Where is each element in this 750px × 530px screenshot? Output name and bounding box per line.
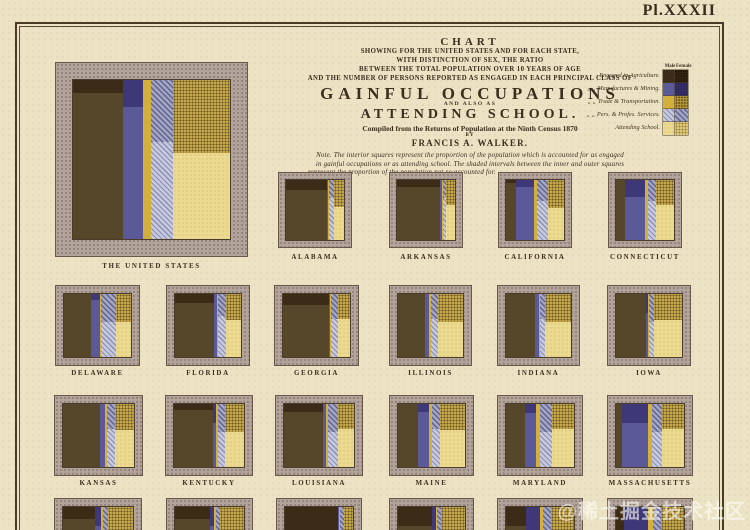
- state-label: MARYLAND: [487, 479, 593, 487]
- segment-school: [654, 320, 682, 357]
- state-label: ILLINOIS: [379, 369, 482, 377]
- legend-row: „ „ Pers. & Profes. Services.: [592, 109, 722, 122]
- occupation-band: [622, 404, 648, 467]
- state-square-partial: [276, 498, 362, 530]
- segment-school: [334, 207, 344, 240]
- square-inner: [506, 180, 564, 240]
- segment-agriDark: [285, 507, 338, 530]
- occupation-band: [397, 180, 440, 240]
- segment-svcDark: [218, 294, 226, 316]
- legend-label: „ „ Manufactures & Mining.: [540, 85, 660, 92]
- legend-label: Engaged in Agriculture.: [540, 72, 660, 79]
- state-square: [166, 285, 250, 366]
- state-label: CALIFORNIA: [488, 253, 582, 261]
- segment-svcDark: [537, 180, 549, 201]
- segment-agriDark: [73, 80, 123, 93]
- segment-svcDark: [432, 404, 440, 429]
- segment-svcDark: [107, 404, 115, 429]
- segment-schoolDot: [344, 507, 353, 530]
- legend-chip-female: [675, 96, 688, 109]
- square-inner: [286, 180, 344, 240]
- segment-trade: [143, 80, 150, 239]
- occupation-band: [63, 507, 95, 530]
- occupation-band: [506, 180, 516, 240]
- occupation-band: [218, 294, 226, 357]
- state-label: LOUISIANA: [265, 479, 373, 487]
- segment-schoolDot: [548, 180, 564, 208]
- square-inner: [63, 507, 133, 530]
- state-square: [498, 172, 572, 248]
- occupation-band: [432, 404, 440, 467]
- segment-svc: [648, 201, 655, 240]
- state-label: INDIANA: [487, 369, 590, 377]
- segment-school: [656, 205, 674, 240]
- occupation-band: [418, 404, 429, 467]
- segment-school: [338, 429, 354, 467]
- legend-row: Engaged in Agriculture.: [592, 70, 722, 83]
- segment-mfgDark: [622, 404, 648, 423]
- segment-agriDark: [397, 180, 440, 187]
- segment-agri: [286, 190, 327, 240]
- state-label: ARKANSAS: [379, 253, 473, 261]
- segment-svc: [540, 432, 552, 467]
- segment-school: [446, 205, 455, 240]
- chart-label: CHART: [280, 36, 660, 48]
- segment-agriDark: [283, 294, 329, 305]
- segment-agri: [506, 294, 535, 357]
- segment-school: [545, 322, 571, 357]
- occupation-band: [116, 294, 131, 357]
- state-square: [278, 172, 352, 248]
- legend-row: „ „ Trade & Transportation.: [592, 96, 722, 109]
- segment-schoolDot: [441, 507, 465, 530]
- segment-schoolDot: [226, 294, 241, 320]
- segment-agri: [283, 305, 329, 357]
- segment-school: [173, 153, 230, 239]
- segment-mfgDark: [625, 180, 645, 197]
- occupation-band: [115, 404, 134, 467]
- square-inner: [64, 294, 131, 357]
- segment-svcDark: [540, 404, 552, 432]
- square-inner: [283, 294, 350, 357]
- watermark: @稀土掘金技术社区: [557, 495, 746, 524]
- segment-agriDark: [398, 507, 432, 526]
- segment-mfg: [123, 107, 144, 239]
- segment-schoolDot: [654, 294, 682, 320]
- segment-svc: [151, 142, 173, 239]
- subtitle-line: WITH DISTINCTION OF SEX, THE RATIO: [280, 57, 660, 64]
- segment-svc: [218, 316, 226, 357]
- occupation-band: [286, 180, 327, 240]
- legend-header-male: Male: [663, 64, 677, 69]
- occupation-band: [338, 404, 354, 467]
- state-square: [389, 172, 463, 248]
- state-square: [55, 62, 248, 257]
- segment-svcDark: [151, 80, 173, 142]
- legend-chip-female: [675, 83, 688, 96]
- segment-agriDark: [506, 507, 526, 526]
- occupation-band: [225, 404, 244, 467]
- legend-label: „ „ Trade & Transportation.: [540, 98, 660, 105]
- segment-agri: [284, 412, 323, 467]
- segment-mfgDark: [526, 507, 540, 530]
- square-inner: [506, 294, 571, 357]
- segment-mfg: [622, 423, 648, 467]
- segment-agriDark: [63, 507, 95, 519]
- legend-chip-male: [663, 109, 675, 122]
- occupation-band: [526, 507, 540, 530]
- segment-agri: [63, 519, 95, 530]
- occupation-band: [143, 80, 150, 239]
- occupation-band: [543, 507, 551, 530]
- square-inner: [506, 404, 574, 467]
- occupation-band: [616, 180, 625, 240]
- square-inner: [63, 404, 134, 467]
- segment-svc: [432, 429, 440, 467]
- segment-svc: [107, 429, 115, 467]
- occupation-band: [398, 507, 432, 530]
- segment-schoolDot: [220, 507, 244, 530]
- segment-schoolDot: [656, 180, 674, 205]
- segment-schoolDot: [116, 294, 131, 322]
- segment-schoolDot: [338, 404, 354, 429]
- segment-mfg: [625, 197, 645, 240]
- segment-school: [338, 319, 350, 357]
- segment-svc: [331, 319, 338, 357]
- square-inner: [73, 80, 230, 239]
- legend-chip-male: [663, 122, 675, 135]
- square-inner: [285, 507, 353, 530]
- occupation-band: [516, 180, 533, 240]
- segment-agriDark: [286, 180, 327, 190]
- occupation-band: [220, 507, 244, 530]
- segment-agriDark: [175, 507, 210, 519]
- segment-mfgDark: [123, 80, 144, 107]
- segment-schoolDot: [446, 180, 455, 205]
- occupation-band: [344, 507, 353, 530]
- occupation-band: [441, 507, 465, 530]
- segment-svcDark: [328, 404, 338, 432]
- square-inner: [398, 294, 463, 357]
- occupation-band: [398, 294, 425, 357]
- legend-row: Attending School.: [592, 122, 722, 135]
- occupation-band: [73, 80, 123, 239]
- occupation-band: [625, 180, 645, 240]
- segment-schoolDot: [225, 404, 244, 432]
- occupation-band: [328, 404, 338, 467]
- occupation-band: [548, 180, 564, 240]
- legend-row: „ „ Manufactures & Mining.: [592, 83, 722, 96]
- segment-agriDark: [284, 404, 323, 412]
- segment-mfg: [418, 412, 429, 467]
- occupation-band: [331, 294, 338, 357]
- segment-schoolDot: [338, 294, 350, 319]
- occupation-band: [662, 404, 684, 467]
- square-inner: [175, 294, 241, 357]
- legend-label: Attending School.: [540, 124, 660, 131]
- occupation-band: [218, 404, 225, 467]
- legend-chip-female: [675, 109, 688, 122]
- legend-label: „ „ Pers. & Profes. Services.: [540, 111, 660, 118]
- segment-school: [440, 430, 465, 467]
- state-label: THE UNITED STATES: [45, 262, 258, 270]
- segment-svcDark: [648, 180, 655, 201]
- segment-mfgDark: [516, 180, 533, 187]
- occupation-band: [91, 294, 100, 357]
- legend-chip-female: [675, 122, 688, 135]
- segment-agri: [175, 303, 214, 357]
- occupation-band: [506, 507, 526, 530]
- occupation-band: [175, 507, 210, 530]
- state-label: CONNECTICUT: [598, 253, 692, 261]
- occupation-band: [398, 404, 418, 467]
- segment-svc: [328, 432, 338, 467]
- occupation-band: [101, 294, 116, 357]
- occupation-band: [438, 294, 463, 357]
- segment-schoolDot: [662, 404, 684, 429]
- segment-school: [116, 322, 131, 357]
- segment-agri: [174, 410, 213, 467]
- occupation-band: [446, 180, 455, 240]
- state-square: [275, 395, 363, 476]
- occupation-band: [173, 80, 230, 239]
- state-square: [54, 395, 143, 476]
- occupation-band: [174, 404, 213, 467]
- segment-svcDark: [543, 507, 551, 530]
- square-inner: [398, 507, 465, 530]
- segment-agri: [73, 93, 123, 239]
- occupation-band: [537, 180, 549, 240]
- segment-schoolDot: [108, 507, 133, 530]
- segment-school: [552, 429, 574, 467]
- segment-school: [548, 208, 564, 240]
- state-square: [389, 285, 472, 366]
- segment-schoolDot: [440, 404, 465, 430]
- occupation-band: [285, 507, 338, 530]
- occupation-band: [338, 294, 350, 357]
- occupation-band: [654, 294, 682, 357]
- segment-schoolDot: [115, 404, 134, 430]
- segment-svc: [101, 322, 116, 357]
- state-label: IOWA: [597, 369, 701, 377]
- state-label: KANSAS: [44, 479, 153, 487]
- segment-school: [438, 322, 463, 357]
- state-label: MASSACHUSETTS: [597, 479, 703, 487]
- state-square: [389, 395, 474, 476]
- occupation-band: [226, 294, 241, 357]
- segment-mfg: [525, 413, 536, 467]
- occupation-band: [540, 404, 552, 467]
- state-square: [607, 395, 693, 476]
- occupation-band: [63, 404, 100, 467]
- segment-schoolDot: [552, 404, 574, 429]
- segment-agri: [64, 294, 91, 357]
- segment-agriDark: [175, 294, 214, 303]
- occupation-band: [151, 80, 173, 239]
- chart-plate: Pl.XXXII CHART SHOWING FOR THE UNITED ST…: [0, 0, 750, 530]
- state-square-partial: [54, 498, 142, 530]
- segment-agri: [63, 404, 100, 467]
- occupation-band: [656, 180, 674, 240]
- segment-svcDark: [652, 404, 661, 432]
- occupation-band: [545, 294, 571, 357]
- segment-agri: [398, 404, 418, 467]
- segment-schoolDot: [545, 294, 571, 322]
- legend-chip-male: [663, 83, 675, 96]
- segment-agri: [398, 294, 425, 357]
- occupation-band: [108, 507, 133, 530]
- note-line: Note. The interior squares represent the…: [280, 152, 660, 159]
- segment-mfg: [516, 187, 533, 240]
- occupation-band: [334, 180, 344, 240]
- segment-mfgDark: [525, 404, 536, 413]
- square-inner: [398, 404, 465, 467]
- square-inner: [174, 404, 244, 467]
- state-label: DELAWARE: [45, 369, 150, 377]
- segment-agri: [616, 294, 646, 357]
- segment-school: [225, 432, 244, 467]
- segment-agri: [506, 183, 516, 240]
- state-square: [274, 285, 359, 366]
- segment-svc: [537, 201, 549, 240]
- state-square: [608, 172, 682, 248]
- occupation-band: [283, 294, 329, 357]
- state-square: [165, 395, 253, 476]
- segment-school: [662, 429, 684, 467]
- legend-chip-male: [663, 70, 675, 83]
- segment-agri: [397, 187, 440, 240]
- occupation-band: [506, 294, 535, 357]
- segment-mfg: [91, 300, 100, 357]
- state-square: [607, 285, 691, 366]
- segment-agri: [616, 180, 625, 240]
- plate-number: Pl.XXXII: [643, 2, 716, 20]
- segment-school: [115, 430, 134, 467]
- state-label: KENTUCKY: [155, 479, 263, 487]
- segment-mfgDark: [418, 404, 429, 412]
- segment-agri: [506, 526, 526, 530]
- occupation-band: [107, 404, 115, 467]
- segment-schoolDot: [173, 80, 230, 153]
- occupation-band: [616, 294, 646, 357]
- segment-svcDark: [218, 404, 225, 432]
- occupation-band: [506, 404, 525, 467]
- occupation-band: [525, 404, 536, 467]
- segment-agri: [506, 404, 525, 467]
- occupation-band: [552, 404, 574, 467]
- occupation-band: [284, 404, 323, 467]
- state-square: [55, 285, 140, 366]
- occupation-band: [64, 294, 91, 357]
- segment-svc: [652, 432, 661, 467]
- square-inner: [284, 404, 354, 467]
- state-square: [497, 395, 583, 476]
- state-label: ALABAMA: [268, 253, 362, 261]
- segment-schoolDot: [334, 180, 344, 207]
- occupation-band: [123, 80, 144, 239]
- square-inner: [616, 294, 682, 357]
- state-square: [497, 285, 580, 366]
- segment-svcDark: [331, 294, 338, 319]
- square-inner: [175, 507, 244, 530]
- state-label: MAINE: [379, 479, 484, 487]
- segment-schoolDot: [438, 294, 463, 322]
- legend-chip-male: [663, 96, 675, 109]
- square-inner: [616, 404, 684, 467]
- state-label: FLORIDA: [156, 369, 260, 377]
- segment-svc: [218, 432, 225, 467]
- legend-header-female: Female: [676, 64, 690, 69]
- author-name: FRANCIS A. WALKER.: [280, 138, 660, 148]
- segment-svcDark: [101, 294, 116, 322]
- square-inner: [397, 180, 455, 240]
- segment-school: [226, 320, 241, 357]
- segment-agri: [175, 519, 210, 530]
- segment-agri: [398, 526, 432, 530]
- state-square-partial: [389, 498, 474, 530]
- occupation-band: [648, 180, 655, 240]
- state-square-partial: [166, 498, 253, 530]
- occupation-band: [440, 404, 465, 467]
- subtitle-line: SHOWING FOR THE UNITED STATES AND FOR EA…: [280, 48, 660, 55]
- occupation-band: [175, 294, 214, 357]
- note-line: in gainful occupations or as attending s…: [280, 161, 660, 168]
- occupation-band: [652, 404, 661, 467]
- legend-chip-female: [675, 70, 688, 83]
- state-label: GEORGIA: [264, 369, 369, 377]
- square-inner: [616, 180, 674, 240]
